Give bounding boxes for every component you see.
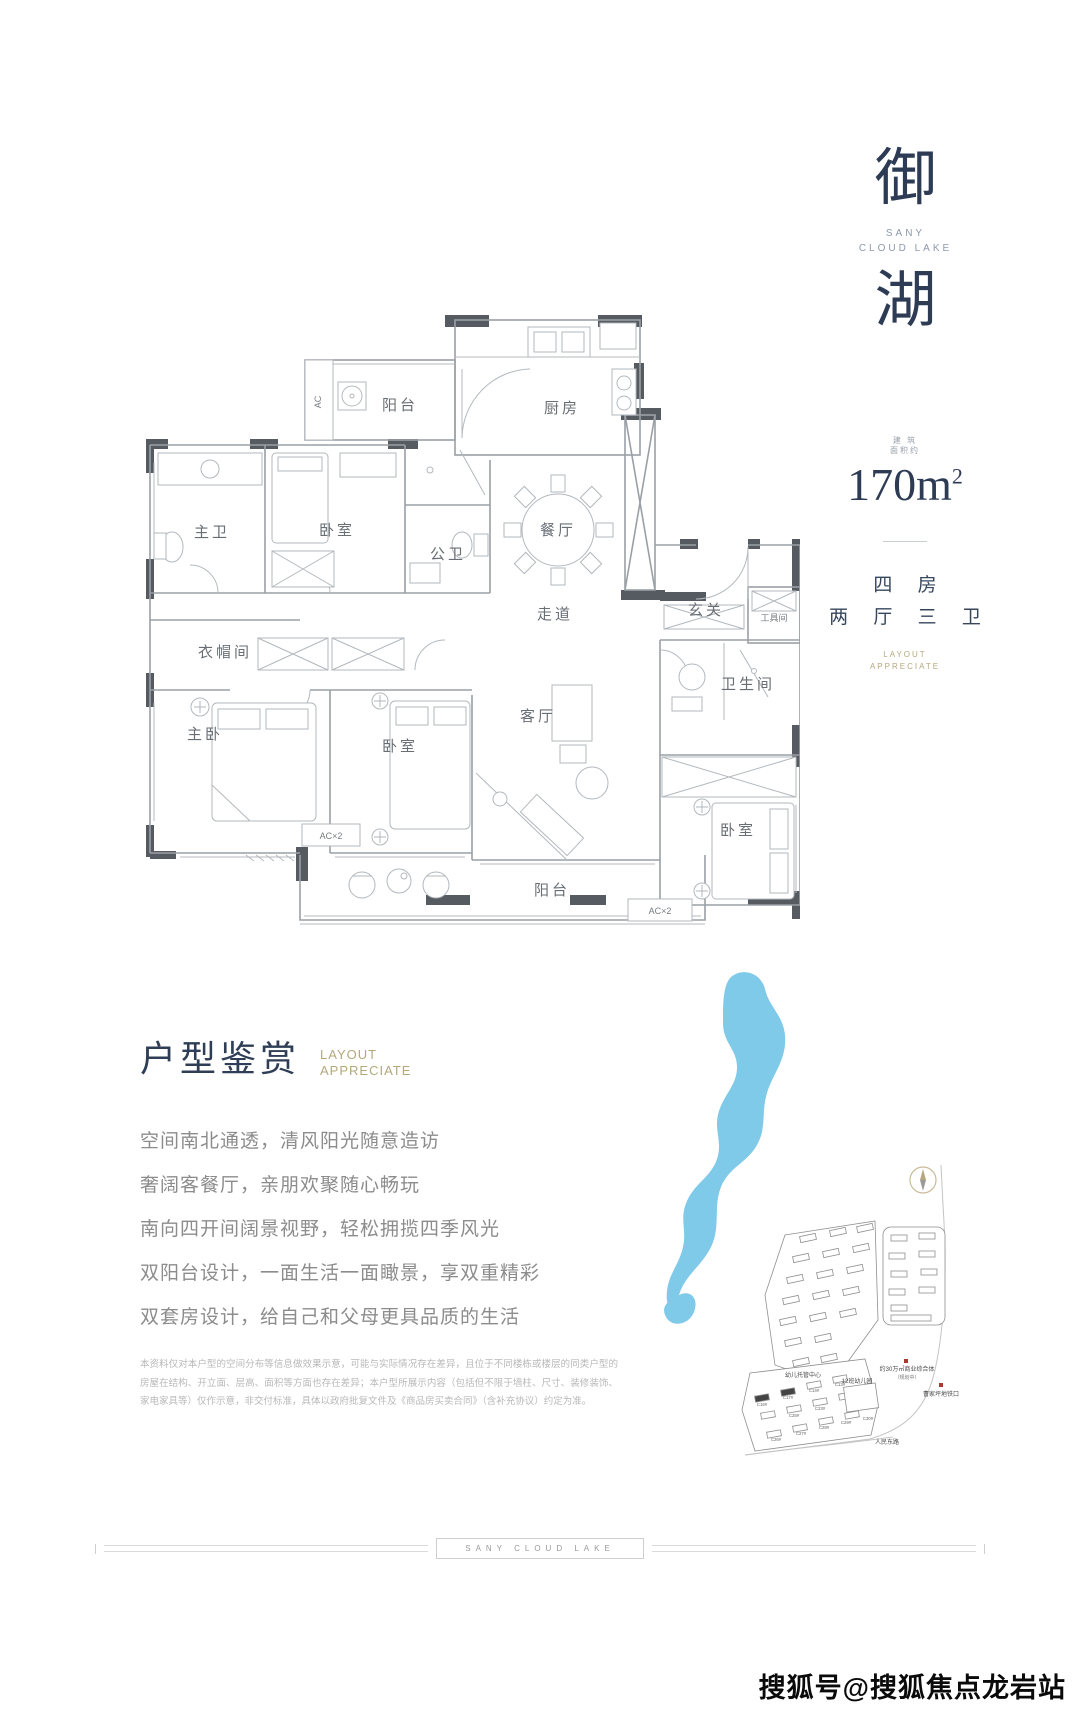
footer-tick-right	[984, 1544, 985, 1554]
building-code: C14#	[809, 1388, 820, 1393]
kindergarten-building	[843, 1383, 878, 1412]
room-label-master-bedroom: 主卧	[187, 726, 223, 743]
label-ac-vertical: AC	[313, 395, 323, 408]
site-map-svg: C16# C17# C14# C13# C25# C23# C30# C29# …	[635, 965, 1035, 1475]
layout-en-line1: LAYOUT	[780, 649, 1030, 661]
appreciation-heading: 户型鉴赏 LAYOUT APPRECIATE	[140, 1030, 640, 1082]
rooms-line2: 两 厅 三 卫	[790, 602, 1030, 634]
brand-logo: 御 SANY CLOUD LAKE 湖	[843, 148, 968, 332]
area-note-line2: 面积约	[780, 446, 1030, 456]
area-note-line1: 建 筑	[780, 436, 1030, 446]
page: { "brand": { "char_top": "御", "char_bott…	[0, 0, 1080, 1710]
poi-dot-commercial	[904, 1359, 908, 1363]
feature-lines: 空间南北通透，清风阳光随意造访 奢阔客餐厅，亲朋欢聚随心畅玩 南向四开间阔景视野…	[140, 1120, 640, 1340]
building-code: C25#	[789, 1413, 800, 1418]
room-label-master-bath: 主卫	[194, 524, 230, 541]
room-label-living: 客厅	[520, 708, 556, 725]
feature-line: 双阳台设计，一面生活一面瞰景，享双重精彩	[140, 1252, 640, 1296]
brand-char-bottom: 湖	[843, 270, 968, 332]
footer-rule-left	[104, 1545, 428, 1552]
building-code: C27#	[796, 1431, 807, 1436]
room-label-cloakroom: 衣帽间	[198, 644, 252, 661]
map-label-road-bottom: 人民东路	[875, 1438, 899, 1446]
room-label-balcony-bottom: 阳台	[534, 882, 570, 899]
appreciation-section: 户型鉴赏 LAYOUT APPRECIATE 空间南北通透，清风阳光随意造访 奢…	[140, 1030, 640, 1412]
map-label-metro: 曹家坪地铁口	[923, 1390, 959, 1398]
appreciation-title-en-line2: APPRECIATE	[320, 1063, 411, 1079]
area-note: 建 筑 面积约	[780, 436, 1030, 456]
watermark: 搜狐号@搜狐焦点龙岩站	[759, 1666, 1066, 1705]
building-code: C16#	[757, 1402, 768, 1407]
appreciation-title-cn: 户型鉴赏	[140, 1030, 300, 1082]
feature-line: 空间南北通透，清风阳光随意造访	[140, 1120, 640, 1164]
rooms-summary: 四 房 两 厅 三 卫	[790, 570, 1030, 635]
rooms-line1: 四 房	[790, 570, 1030, 602]
building-code: C28#	[819, 1425, 830, 1430]
feature-line: 南向四开间阔景视野，轻松拥揽四季风光	[140, 1208, 640, 1252]
brand-name-line2: CLOUD LAKE	[843, 241, 968, 256]
area-info: 建 筑 面积约 170m2 四 房 两 厅 三 卫 LAYOUT APPRECI…	[780, 436, 1030, 673]
room-label-tool-room: 工具间	[760, 612, 787, 623]
label-ac2-right: AC×2	[649, 906, 672, 916]
brand-name-line1: SANY	[843, 226, 968, 241]
area-number: 170m	[847, 459, 952, 510]
appreciation-title-en-line1: LAYOUT	[320, 1047, 411, 1063]
building-code: C26#	[771, 1437, 782, 1442]
area-value: 170m2	[780, 458, 1030, 511]
footer-rule-right	[652, 1545, 976, 1552]
room-label-balcony-top: 阳台	[382, 397, 418, 414]
compass-icon	[910, 1167, 936, 1193]
room-label-bedroom-mid: 卧室	[382, 738, 418, 755]
room-label-bedroom-top: 卧室	[319, 522, 355, 539]
feature-line: 奢阔客餐厅，亲朋欢聚随心畅玩	[140, 1164, 640, 1208]
appreciation-title-en: LAYOUT APPRECIATE	[320, 1047, 411, 1080]
map-label-kindergarten: 12班幼儿园	[842, 1377, 873, 1385]
area-divider	[883, 541, 927, 542]
layout-en: LAYOUT APPRECIATE	[780, 649, 1030, 673]
label-ac2-left: AC×2	[320, 831, 343, 841]
floorplan-svg: 阳台 厨房 主卫 卧室 公卫 餐厅 走道 玄关 工具间 衣帽间 主卧 卧室 客厅…	[100, 305, 800, 935]
footer: SANY CLOUD LAKE	[95, 1538, 985, 1559]
building-code: C29#	[841, 1420, 852, 1425]
map-label-commercial-note: （规划中）	[894, 1374, 919, 1381]
building-code: C23#	[815, 1406, 826, 1411]
map-cluster-upper-right	[883, 1227, 945, 1325]
floorplan-furniture	[154, 323, 796, 921]
building-code: C30#	[863, 1416, 874, 1421]
feature-line: 双套房设计，给自己和父母更具品质的生活	[140, 1296, 640, 1340]
building-code: C17#	[783, 1395, 794, 1400]
area-sup: 2	[952, 464, 963, 489]
room-label-kitchen: 厨房	[544, 400, 580, 417]
lake-shape	[667, 972, 786, 1307]
poi-dot-metro	[939, 1383, 943, 1387]
room-label-corridor: 走道	[537, 606, 573, 623]
brand-char-top: 御	[843, 148, 968, 210]
room-label-dining: 餐厅	[540, 522, 576, 539]
room-label-entry: 玄关	[688, 602, 724, 619]
map-label-commercial: 约30万㎡商业综合体	[880, 1365, 935, 1373]
footer-tick-left	[95, 1544, 96, 1554]
room-label-public-bath: 公卫	[430, 546, 466, 563]
brand-name-en: SANY CLOUD LAKE	[843, 226, 968, 256]
room-label-bedroom-br: 卧室	[720, 822, 756, 839]
layout-en-line2: APPRECIATE	[780, 661, 1030, 673]
disclaimer-text: 本资料仅对本户型的空间分布等信息做效果示意，可能与实际情况存在差异，且位于不同楼…	[140, 1356, 618, 1412]
map-label-childcare: 幼儿托管中心	[785, 1371, 821, 1379]
room-label-bathroom: 卫生间	[721, 676, 775, 693]
footer-brand: SANY CLOUD LAKE	[436, 1538, 644, 1559]
